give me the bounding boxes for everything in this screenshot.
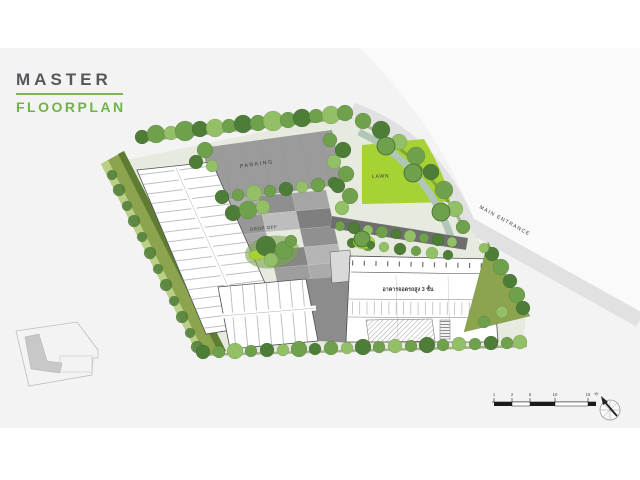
title-underline [16,93,123,95]
scale-tick-label: 1 [493,392,496,397]
scale-tick-label: 15 [586,392,591,397]
scale-tick-label: 5 [529,392,532,397]
page-title: MASTER [16,70,126,90]
title-block: MASTER FLOORPLAN [16,70,126,115]
scale-tick-label: 10 [553,392,558,397]
key-plan [16,322,98,386]
master-floorplan-page: PARKING LAWN MAIN ENTRANCE DROP OFF อาคา… [0,0,640,480]
lawn-label: LAWN [372,173,390,180]
north-arrow-icon: N [594,391,620,420]
north-label: N [594,391,600,397]
scale-bar: 1 2 5 10 15 [492,392,596,406]
page-subtitle: FLOORPLAN [16,99,126,115]
scale-tick-label: 2 [511,392,514,397]
residential-lower-wing [218,279,318,349]
